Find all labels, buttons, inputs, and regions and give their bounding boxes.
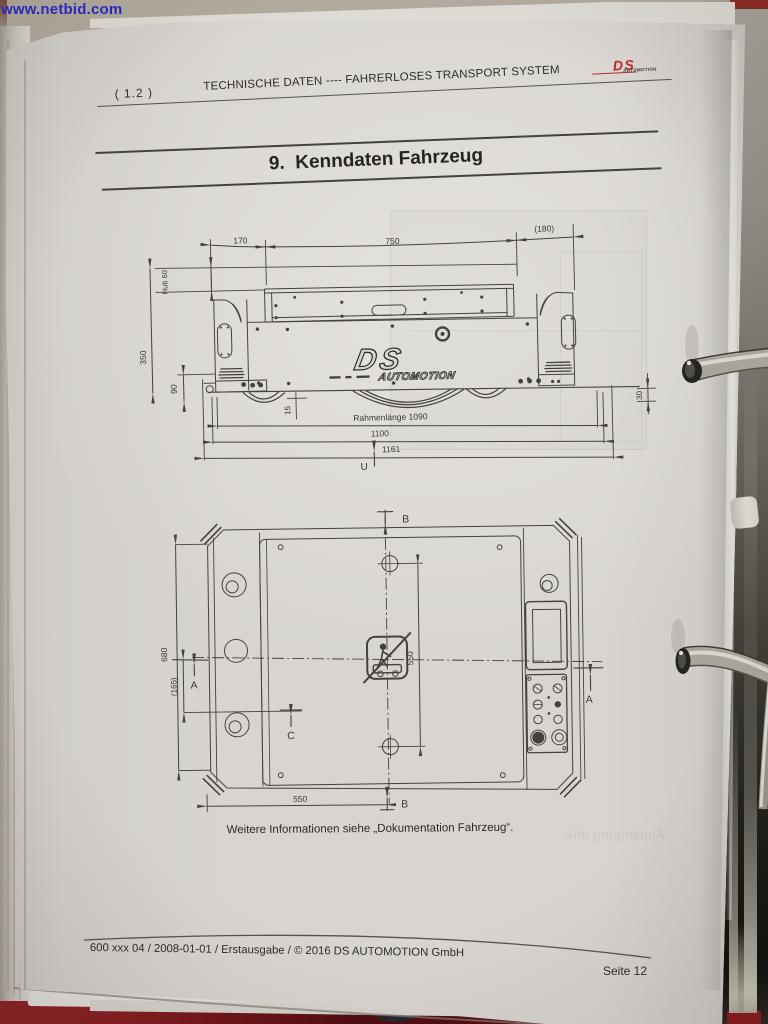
svg-text:550: 550	[405, 651, 415, 666]
svg-text:B: B	[401, 798, 408, 810]
svg-text:Rahmenlänge 1090: Rahmenlänge 1090	[353, 411, 428, 423]
svg-text:550: 550	[293, 794, 308, 804]
svg-text:C: C	[287, 730, 295, 742]
svg-text:680: 680	[159, 647, 169, 662]
svg-text:B: B	[402, 513, 409, 525]
svg-text:170: 170	[233, 235, 248, 245]
svg-text:A: A	[190, 679, 197, 691]
svg-text:1100: 1100	[371, 428, 390, 438]
svg-text:(165): (165)	[169, 677, 178, 696]
svg-text:A: A	[586, 694, 593, 706]
svg-text:AUTOMOTION: AUTOMOTION	[377, 370, 457, 384]
svg-text:1161: 1161	[382, 444, 401, 454]
svg-text:90: 90	[169, 384, 179, 394]
svg-text:Hub 60: Hub 60	[160, 270, 170, 294]
svg-text:30: 30	[635, 390, 644, 400]
svg-text:15: 15	[283, 405, 292, 415]
svg-text:U: U	[360, 462, 367, 473]
svg-text:(180): (180)	[534, 223, 554, 233]
svg-text:350: 350	[138, 350, 148, 365]
svg-text:750: 750	[385, 236, 400, 246]
